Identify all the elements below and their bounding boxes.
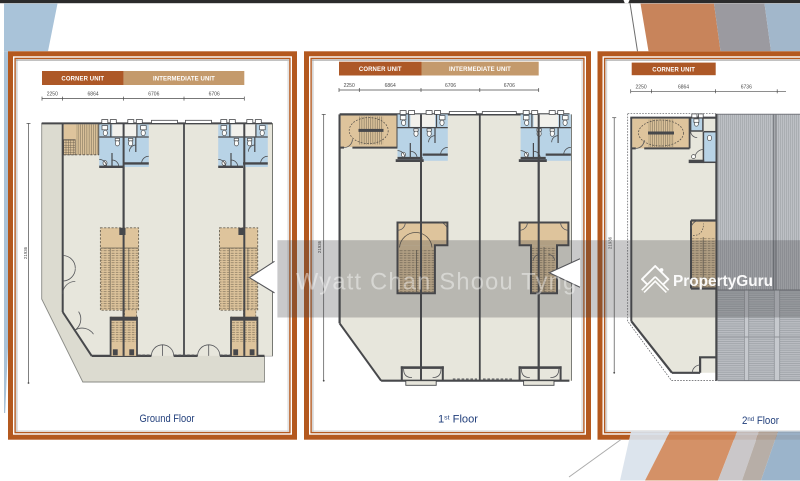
svg-text:6864: 6864 <box>385 83 396 89</box>
svg-text:2250: 2250 <box>636 84 647 90</box>
svg-text:2250: 2250 <box>344 83 355 89</box>
svg-text:Wyatt Chan Shoou Tyng: Wyatt Chan Shoou Tyng <box>296 270 577 296</box>
svg-text:6706: 6706 <box>445 83 456 89</box>
svg-text:6736: 6736 <box>741 84 752 90</box>
svg-text:INTERMEDIATE UNIT: INTERMEDIATE UNIT <box>153 77 215 83</box>
svg-text:CORNER UNIT: CORNER UNIT <box>359 67 402 73</box>
svg-text:Ground Floor: Ground Floor <box>140 413 195 425</box>
svg-text:CORNER UNIT: CORNER UNIT <box>652 67 695 73</box>
svg-text:1st Floor: 1st Floor <box>438 413 478 425</box>
svg-text:6864: 6864 <box>88 92 99 98</box>
svg-text:6706: 6706 <box>209 92 220 98</box>
svg-text:6706: 6706 <box>504 83 515 89</box>
svg-text:INTERMEDIATE UNIT: INTERMEDIATE UNIT <box>449 67 511 73</box>
svg-text:PropertyGuru: PropertyGuru <box>673 273 773 290</box>
svg-text:CORNER UNIT: CORNER UNIT <box>61 77 104 83</box>
svg-text:21936: 21936 <box>23 246 28 259</box>
svg-text:2250: 2250 <box>47 92 58 98</box>
svg-text:6706: 6706 <box>148 92 159 98</box>
svg-text:6864: 6864 <box>678 84 689 90</box>
